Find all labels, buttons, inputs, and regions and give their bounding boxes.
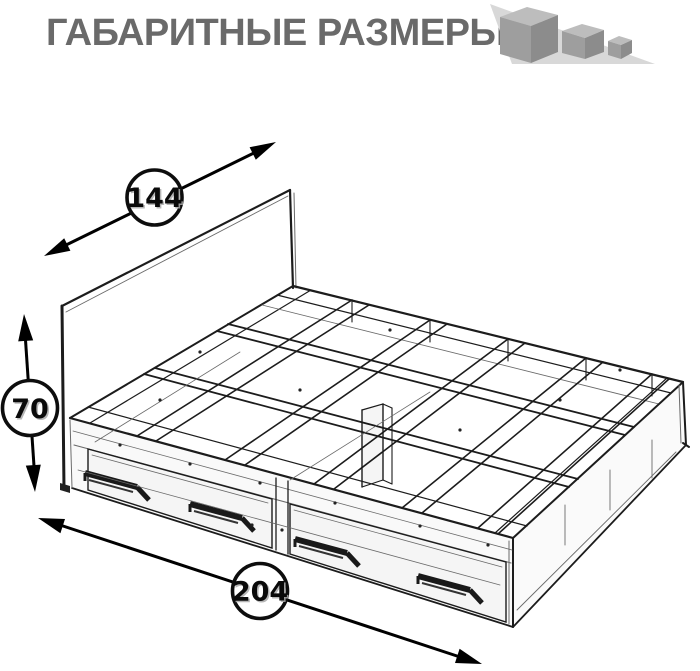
arrowhead-icon: [250, 142, 276, 160]
arrowhead-icon: [26, 465, 41, 492]
arrowhead-icon: [455, 649, 482, 664]
bed-dimensions-diagram: 144 144 70 70 204 204: [0, 0, 700, 671]
gabarit-dimensions-page: ГАБАРИТНЫЕ РАЗМЕРЫ: [0, 0, 700, 671]
dimension-height: 70 70: [3, 314, 58, 492]
length-value: 204: [232, 577, 288, 608]
logo-cube-large: [500, 7, 558, 63]
dimension-width: 144 144: [44, 142, 276, 256]
left-foot: [60, 483, 70, 493]
logo-cube-medium: [562, 24, 604, 59]
arrowhead-icon: [38, 518, 65, 533]
shrinking-cubes-icon: [490, 4, 655, 64]
height-value: 70: [11, 394, 49, 425]
arrowhead-icon: [44, 238, 70, 256]
center-divider: [362, 404, 392, 487]
arrowhead-icon: [18, 314, 33, 341]
width-value: 144: [126, 183, 182, 214]
bed-wireframe-drawing: [60, 190, 689, 627]
